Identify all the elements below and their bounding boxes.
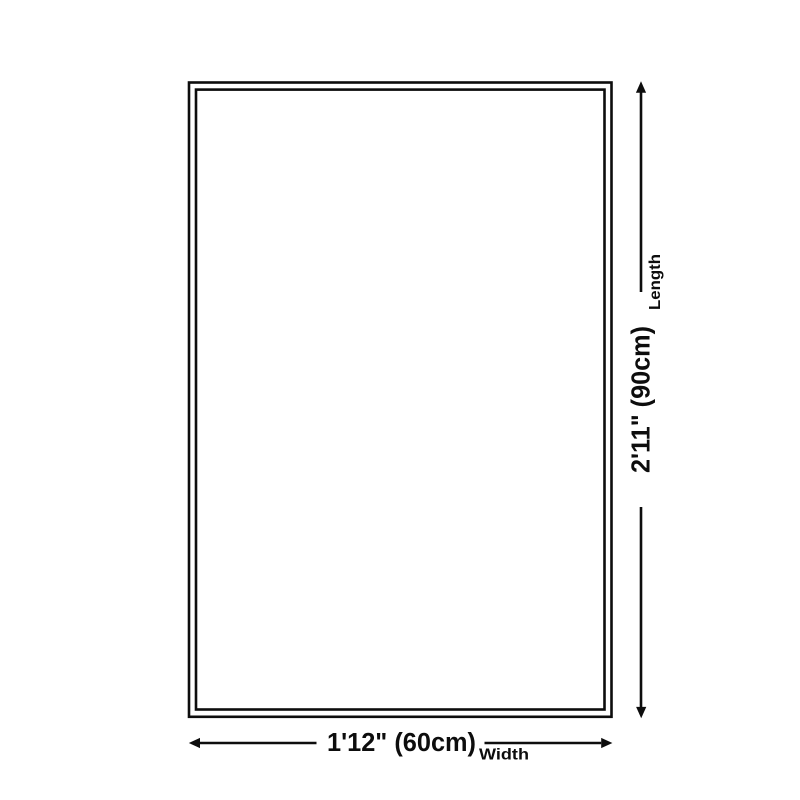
svg-text:1'12" (60cm): 1'12" (60cm) [327,729,476,757]
svg-text:Width: Width [479,747,529,764]
svg-text:Length: Length [647,254,664,310]
svg-text:2'11" (90cm): 2'11" (90cm) [628,326,656,473]
